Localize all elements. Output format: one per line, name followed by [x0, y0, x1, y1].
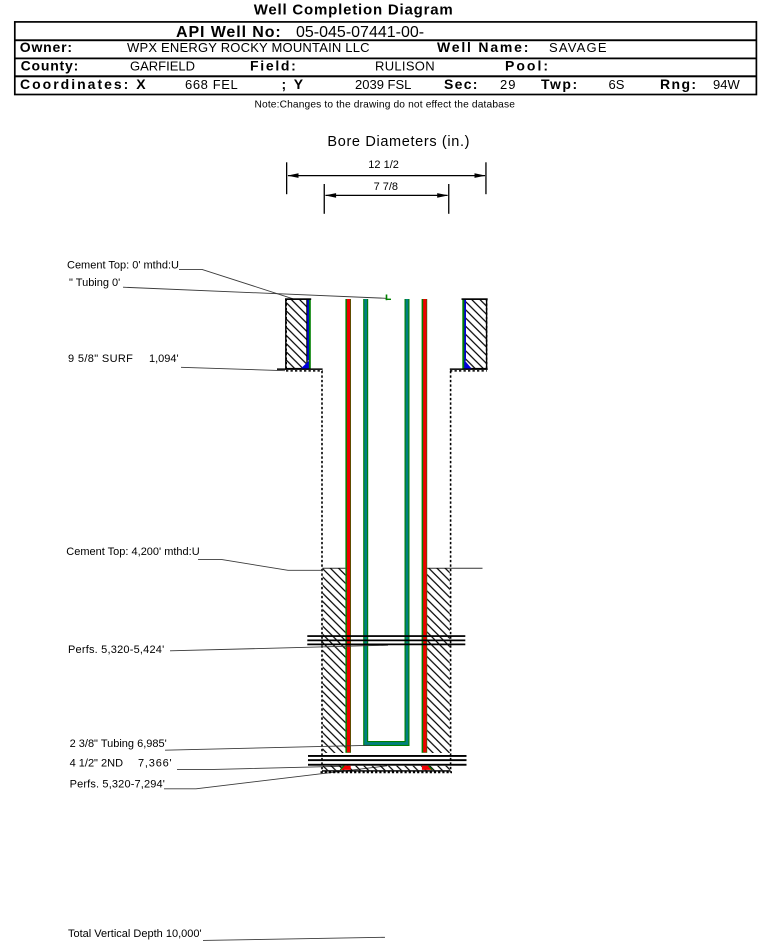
svg-text:Pool:: Pool: [505, 58, 550, 74]
svg-text:Rng:: Rng: [660, 76, 697, 92]
svg-text:SAVAGE: SAVAGE [549, 40, 608, 55]
svg-text:Total Vertical Depth 10,000': Total Vertical Depth 10,000' [68, 928, 202, 940]
svg-text:RULISON: RULISON [375, 59, 435, 74]
svg-text:7,366': 7,366' [138, 757, 172, 769]
svg-text:API Well No:: API Well No: [176, 24, 282, 41]
svg-text:05-045-07441-00-: 05-045-07441-00- [296, 24, 424, 41]
svg-text:4 1/2" 2ND: 4 1/2" 2ND [70, 757, 123, 769]
svg-text:Field:: Field: [250, 58, 298, 74]
svg-text:94W: 94W [713, 77, 740, 92]
svg-text:WPX ENERGY ROCKY MOUNTAIN LLC: WPX ENERGY ROCKY MOUNTAIN LLC [127, 40, 370, 55]
svg-text:7 7/8: 7 7/8 [374, 181, 398, 193]
svg-text:2039 FSL: 2039 FSL [355, 77, 411, 92]
svg-text:GARFIELD: GARFIELD [130, 59, 195, 74]
svg-text:Cement Top: 0' mthd:U: Cement Top: 0' mthd:U [67, 259, 179, 271]
svg-text:Perfs. 5,320-7,294': Perfs. 5,320-7,294' [70, 779, 165, 791]
svg-text:Owner:: Owner: [20, 39, 73, 55]
svg-text:Well Name:: Well Name: [437, 39, 530, 55]
svg-text:" Tubing 0': " Tubing 0' [69, 277, 120, 289]
svg-text:Sec:: Sec: [444, 76, 479, 92]
svg-text:Note:Changes to the drawing do: Note:Changes to the drawing do not effec… [255, 99, 516, 110]
svg-text:Bore Diameters (in.): Bore Diameters (in.) [327, 134, 470, 150]
svg-text:12 1/2: 12 1/2 [368, 159, 399, 171]
svg-text:9 5/8" SURF: 9 5/8" SURF [68, 353, 133, 365]
svg-text:County:: County: [21, 58, 79, 74]
svg-text:Coordinates: X: Coordinates: X [20, 76, 148, 92]
svg-text:1,094': 1,094' [149, 353, 179, 365]
svg-text:; Y: ; Y [282, 76, 306, 92]
svg-text:668 FEL: 668 FEL [185, 77, 238, 92]
svg-text:Well Completion Diagram: Well Completion Diagram [254, 1, 454, 18]
svg-text:Cement Top: 4,200' mthd:U: Cement Top: 4,200' mthd:U [66, 546, 199, 558]
svg-text:29: 29 [500, 77, 516, 92]
svg-text:Perfs. 5,320-5,424': Perfs. 5,320-5,424' [68, 644, 164, 656]
svg-text:6S: 6S [609, 77, 625, 92]
svg-text:2 3/8" Tubing 6,985': 2 3/8" Tubing 6,985' [70, 738, 167, 750]
svg-text:Twp:: Twp: [541, 76, 579, 92]
